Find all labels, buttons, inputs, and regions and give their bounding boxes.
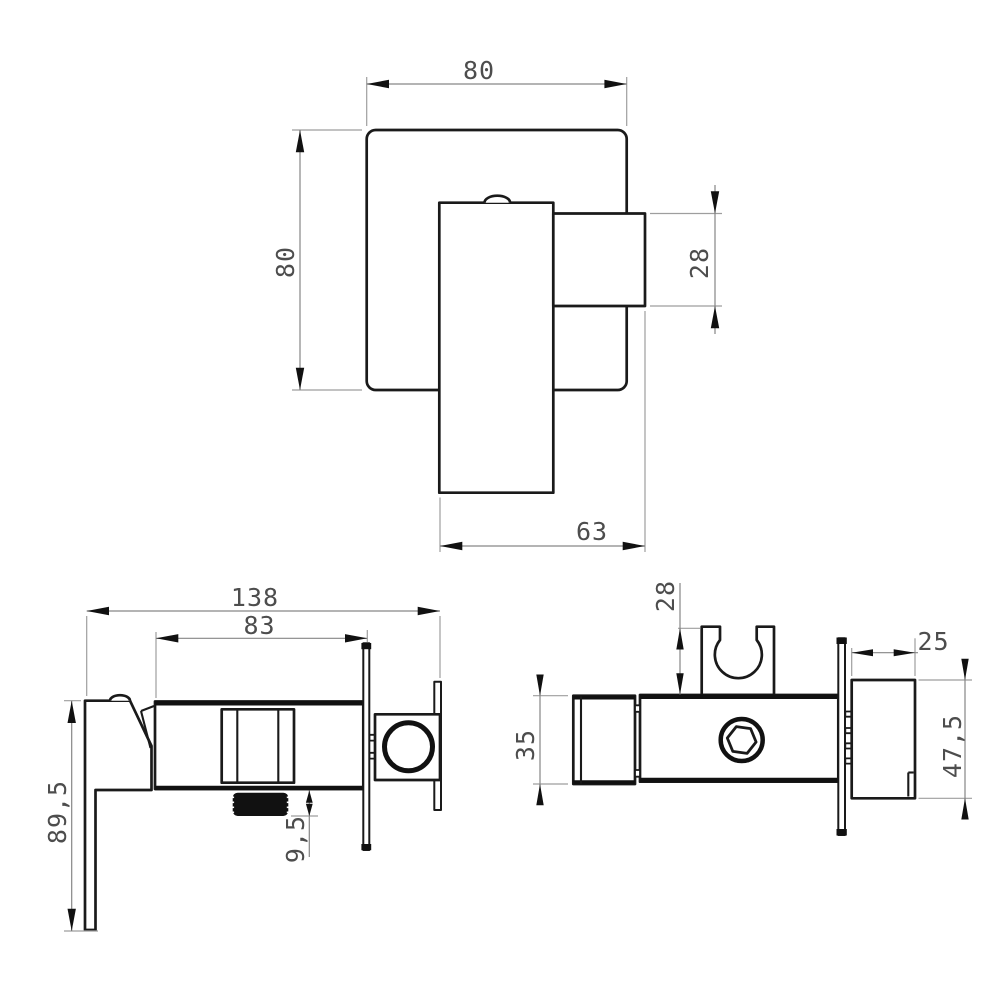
arrowhead-right bbox=[604, 80, 626, 88]
dim-bracket-depth: 25 bbox=[852, 627, 950, 676]
dim-label: 28 bbox=[651, 580, 680, 612]
arrowhead-bottom bbox=[68, 909, 76, 931]
dim-label: 25 bbox=[917, 627, 949, 656]
dim-label: 63 bbox=[576, 517, 608, 546]
pipe-socket-circle bbox=[385, 723, 433, 771]
front-view: 80 80 28 63 bbox=[271, 56, 722, 552]
arrowhead-right bbox=[894, 649, 915, 656]
wall-plate-edge bbox=[838, 638, 845, 835]
handle-pin-dome bbox=[485, 196, 511, 203]
dim-label: 35 bbox=[511, 729, 540, 761]
arrowhead-left bbox=[156, 634, 178, 642]
arrowhead-bottom bbox=[961, 798, 968, 819]
plate-end-cap bbox=[837, 829, 847, 836]
dim-label: 83 bbox=[243, 611, 275, 640]
dim-body-depth: 83 bbox=[156, 611, 367, 698]
drawing-sheet: 80 80 28 63 bbox=[0, 0, 1000, 1000]
arrowhead-top bbox=[306, 791, 313, 803]
mixer-handle-front bbox=[439, 203, 553, 493]
connector-rung bbox=[635, 770, 640, 777]
arrowhead-top bbox=[296, 130, 304, 152]
dim-label: 89,5 bbox=[43, 780, 72, 844]
pivot-tab-line bbox=[141, 706, 154, 711]
arrowhead-bottom bbox=[306, 804, 313, 816]
dim-lever-hub-height: 28 bbox=[650, 185, 722, 334]
dim-body-height: 35 bbox=[511, 675, 568, 806]
dim-bracket-height: 47,5 bbox=[919, 659, 973, 820]
arrowhead-top bbox=[711, 191, 719, 213]
arrowhead-top bbox=[536, 675, 543, 696]
arrowhead-left bbox=[367, 80, 389, 88]
dim-clip-height: 28 bbox=[651, 580, 700, 695]
holder-view: 28 35 25 47,5 bbox=[511, 580, 972, 836]
rear-bracket bbox=[852, 680, 915, 798]
pivot-dome bbox=[110, 695, 130, 700]
arrowhead-bottom bbox=[711, 306, 719, 328]
wall-plate-edge bbox=[363, 643, 369, 850]
connector-rung bbox=[635, 705, 640, 712]
arrowhead-top bbox=[961, 659, 968, 680]
plate-end-cap bbox=[837, 638, 847, 645]
technical-drawing: 80 80 28 63 bbox=[0, 0, 1000, 1000]
arrowhead-bottom bbox=[296, 368, 304, 390]
arrowhead-top bbox=[676, 628, 683, 649]
arrowhead-left bbox=[852, 649, 873, 656]
end-knob bbox=[573, 696, 635, 784]
dim-label: 28 bbox=[685, 247, 714, 279]
dim-label: 80 bbox=[463, 56, 495, 85]
lever-handle-side bbox=[85, 701, 152, 930]
arrowhead-right bbox=[623, 542, 645, 550]
dim-label: 9,5 bbox=[281, 815, 310, 863]
dim-label: 47,5 bbox=[938, 714, 967, 778]
dim-label: 138 bbox=[231, 583, 279, 612]
hex-socket bbox=[727, 727, 756, 754]
outlet-thread bbox=[233, 793, 289, 816]
arrowhead-bottom bbox=[676, 673, 683, 694]
side-view: 138 83 89,5 9,5 bbox=[43, 583, 441, 931]
plate-end-cap bbox=[361, 643, 371, 649]
dim-label: 80 bbox=[271, 246, 300, 278]
handshower-clip bbox=[702, 627, 774, 695]
dim-plate-width: 80 bbox=[367, 56, 627, 126]
arrowhead-right bbox=[418, 607, 440, 615]
plate-end-cap bbox=[361, 844, 371, 850]
arrowhead-left bbox=[87, 607, 109, 615]
arrowhead-right bbox=[345, 634, 367, 642]
lever-hub-front bbox=[553, 214, 645, 307]
cartridge bbox=[222, 709, 294, 782]
arrowhead-left bbox=[440, 542, 462, 550]
dim-plate-height: 80 bbox=[271, 130, 362, 390]
arrowhead-top bbox=[68, 701, 76, 723]
arrowhead-bottom bbox=[536, 784, 543, 805]
